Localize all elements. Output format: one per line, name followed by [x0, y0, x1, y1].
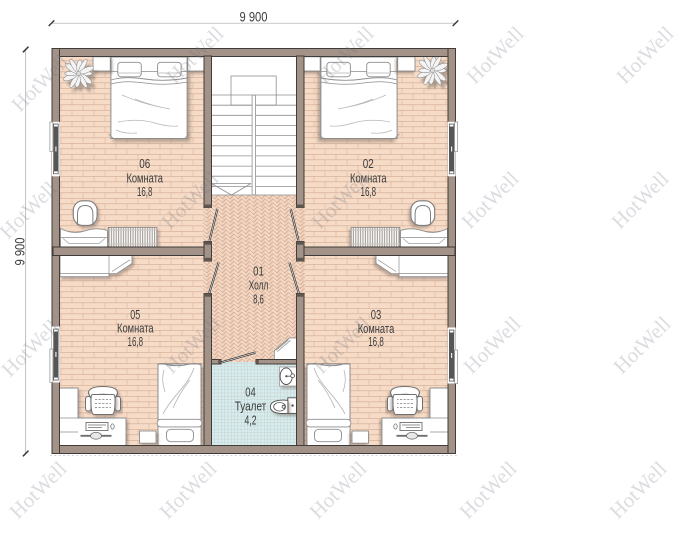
- svg-text:9 900: 9 900: [12, 238, 27, 266]
- svg-text:Туалет: Туалет: [235, 399, 267, 414]
- svg-text:04: 04: [245, 385, 256, 400]
- svg-text:02: 02: [363, 156, 374, 171]
- svg-text:8,6: 8,6: [253, 291, 264, 306]
- svg-text:4,2: 4,2: [245, 413, 257, 428]
- svg-text:9 900: 9 900: [240, 10, 268, 25]
- svg-text:06: 06: [139, 156, 150, 171]
- svg-text:01: 01: [253, 263, 264, 278]
- svg-text:16,8: 16,8: [368, 334, 384, 349]
- svg-text:16,8: 16,8: [137, 184, 153, 199]
- svg-text:Холл: Холл: [249, 277, 269, 292]
- svg-text:16,8: 16,8: [128, 334, 144, 349]
- svg-text:03: 03: [371, 307, 382, 322]
